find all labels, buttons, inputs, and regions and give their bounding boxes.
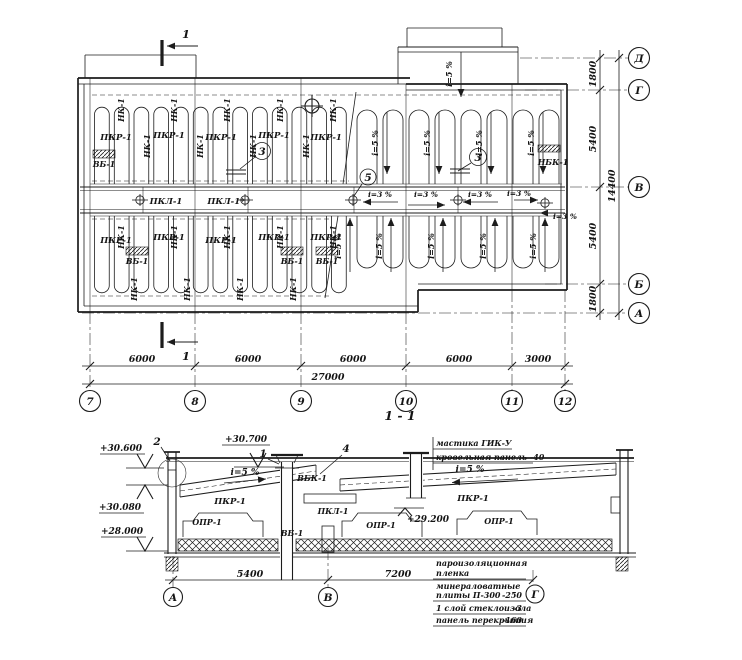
elevation-30700: +30.700 [225,435,268,445]
svg-text:5: 5 [364,172,371,184]
svg-text:3: 3 [474,152,481,164]
section-cut-number-top: 1 [182,27,190,41]
panel-label-nbk: НБК-1 [537,157,569,167]
panel-label-nk: НК-1 [222,98,232,123]
callout-4: 4 [342,443,349,455]
roof-plan: 1 1 ПКР-1 ПКР-1 ПКР-1 ПКР-1 ПКР-1 НК-1 Н… [78,27,650,412]
panel-label-pkr: ПКР-1 [213,497,246,507]
elevation-30600: +30.600 [100,444,143,454]
support-label-opr: ОПР-1 [192,517,221,527]
slope-label-i3: i=3 % [468,190,492,199]
section-title: 1 - 1 [384,408,415,423]
svg-text:3: 3 [258,146,265,158]
panel-label-nk: НК-1 [275,225,285,250]
vb-hatch-box [126,247,148,255]
dim-5400: 5400 [237,569,264,580]
bottom-dimension-chain: 6000 6000 6000 6000 3000 27000 [82,354,573,388]
panel-label-nk: НК-1 [182,277,192,302]
dim-6000: 6000 [340,354,367,365]
axis-bubble-7: 7 [86,396,94,408]
axis-bubble-9: 9 [297,396,305,408]
right-dimension-chain: 1800 5400 5400 1800 14400 [588,50,623,320]
dim-1800: 1800 [588,60,599,87]
column-axis-bubbles: 7 8 9 10 11 12 [80,391,576,412]
slope-label-i5: i=5 % [526,130,536,156]
elevation-marks: +30.600 +30.700 +30.080 +28.000 +29.200 [99,435,450,551]
axis-bubble-v: В [634,182,644,194]
slope-label-i5: i=5 % [422,130,432,156]
slope-label-i5: i=5 % [426,233,436,259]
panel-label-nk: НК-1 [195,134,205,159]
zone-break-lines [325,92,356,298]
panel-label-nk: НК-1 [129,277,139,302]
section-view: 1 - 1 i=5 % i=5 % [99,408,636,626]
elevation-29200: +29.200 [407,515,450,525]
dim-5400: 5400 [588,222,599,249]
panel-label-nk: НК-1 [288,277,298,302]
slope-label-i5: i=5 % [231,468,260,478]
panel-label-nk: НК-1 [116,98,126,123]
panel-label-pkl: ПКЛ-1 [149,197,183,207]
roof-notes-top: мастика ГИК-У кровельная панель -40 [433,437,545,470]
panel-label-pkl: ПКЛ-1 [317,506,349,516]
elevation-28000: +28.000 [101,527,144,537]
note-mastic: мастика ГИК-У [436,438,512,448]
panel-label-vb: ВБ-1 [280,256,303,266]
panel-label-pkr: ПКР-1 [99,133,132,143]
note-vapor-2: пленка [436,568,469,578]
panel-label-pkr: ПКР-1 [257,131,290,141]
panel-label-vb: ВБ-1 [280,528,303,538]
slope-label-i5: i=5 % [456,465,485,475]
note-mineral-value: -250 [502,590,522,600]
axis-bubble-v: В [323,592,333,604]
dim-total: 27000 [310,372,344,383]
dim-6000: 6000 [129,354,156,365]
panel-label-pkl-star: ПКЛ-1* [206,197,245,207]
slope-label-i5: i=5 % [370,130,380,156]
axis-bubble-d: Д [633,53,644,65]
panel-label-vb: ВБ-1 [92,159,115,169]
note-mineral-2: плиты П-300 [436,590,501,600]
note-slab-value: -160 [502,615,522,625]
slope-label-i5: i=5 % [374,233,384,259]
section-cut-number-bottom: 1 [182,349,190,363]
panel-label-nk: НК-1 [301,134,311,159]
roof-drain-icon [450,194,466,206]
axis-bubble-a: А [168,592,178,604]
slope-label-i5: i=5 % [333,233,343,259]
panel-label-nk: НК-1 [116,225,126,250]
drawing-sheet: 1 1 ПКР-1 ПКР-1 ПКР-1 ПКР-1 ПКР-1 НК-1 Н… [0,0,742,660]
axis-bubble-8: 8 [191,396,199,408]
elevation-30080: +30.080 [99,503,142,513]
panel-label-nk: НК-1 [142,134,152,159]
support-label-opr: ОПР-1 [366,520,395,530]
roof-drain-icon [132,194,148,206]
dim-3000: 3000 [525,354,552,365]
roof-notes-bottom: пароизоляционная пленка минераловатные п… [433,558,533,626]
grid-column-lines [90,78,512,312]
note-glass-value: -3 [513,603,522,613]
panel-label-pkr: ПКР-1 [152,131,185,141]
row-axis-bubbles: Д Г В Б А [629,48,650,324]
slope-label-i5: i=5 % [478,233,488,259]
dim-total: 14400 [607,169,618,202]
roof-drain-icon [537,197,553,209]
panel-label-nk: НК-1 [328,98,338,123]
panel-label-nk: НК-1 [169,98,179,123]
vb-hatch-box [93,150,115,158]
panel-label-vbk: ВБК-1 [296,473,327,483]
dim-6000: 6000 [235,354,262,365]
vb-hatch-box [281,247,303,255]
panel-label-vb: ВБ-1 [125,256,148,266]
roof-drain-icon [345,194,361,206]
bottom-band-labels: ПКР-1 ПКР-1 ПКР-1 ПКР-1 ПКР-1 НК-1 НК-1 … [99,225,342,302]
axis-bubble-10: 10 [399,396,414,408]
drain-target-icon [301,95,323,117]
panel-label-nk: НК-1 [169,225,179,250]
building-outline [78,78,567,312]
slope-arrows-top-right: i=5 % i=5 % i=5 % i=5 % [370,112,543,174]
nbk-label: НБК-1 [537,145,569,167]
axis-bubble-a: А [634,308,644,320]
slope-label-i3: i=3 % [507,189,531,198]
panel-label-nk: НК-1 [222,225,232,250]
slope-label-i3: i=3 % [414,190,438,199]
dim-1800: 1800 [588,285,599,312]
dim-6000: 6000 [446,354,473,365]
axis-bubble-g: Г [634,85,643,97]
panel-label-pkr: ПКР-1 [309,133,342,143]
axis-bubble-g: Г [530,589,539,601]
axis-bubble-11: 11 [505,396,520,408]
panel-label-pkr: ПКР-1 [204,133,237,143]
panel-label-nk: НК-1 [235,277,245,302]
slope-label-i5: i=5 % [444,61,454,87]
axis-bubble-12: 12 [558,396,573,408]
right-wall [611,450,633,554]
panel-label-pkr: ПКР-1 [456,494,489,504]
panel-label-nk: НК-1 [275,98,285,123]
slope-label-i3: i=3 % [368,190,392,199]
note-roof-panel: кровельная панель -40 [436,452,545,462]
dim-5400: 5400 [588,125,599,152]
technical-drawing: 1 1 ПКР-1 ПКР-1 ПКР-1 ПКР-1 ПКР-1 НК-1 Н… [0,0,742,660]
axis-bubble-b: Б [634,279,644,291]
support-label-opr: ОПР-1 [484,516,513,526]
note-vapor-1: пароизоляционная [436,558,527,568]
insulation-band [178,539,612,551]
panel-label-nk: НК-1 [248,134,258,159]
dim-7200: 7200 [385,569,412,580]
callout-2: 2 [152,436,160,448]
roofing-line [166,458,634,462]
nbk-hatch-box [538,145,560,152]
slope-label-i5: i=5 % [528,233,538,259]
